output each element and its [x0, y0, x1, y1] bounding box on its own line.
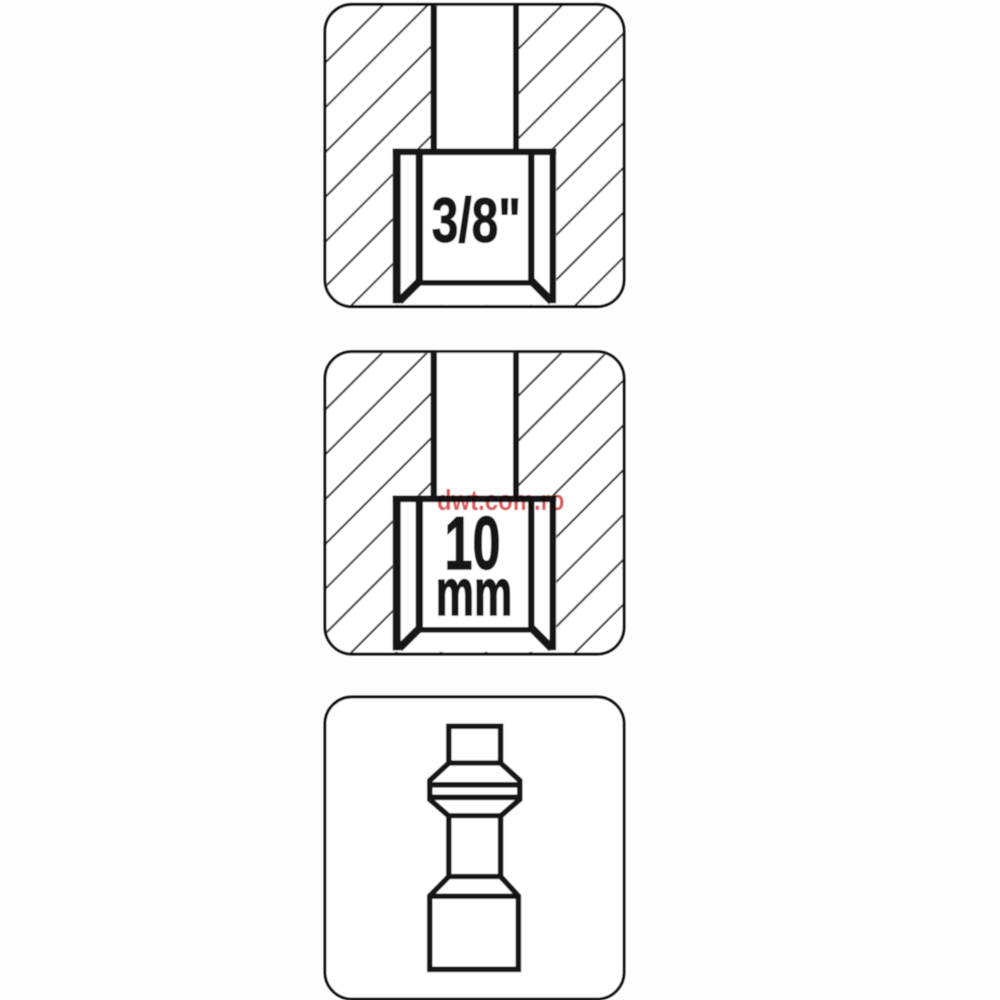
- svg-text:mm: mm: [436, 556, 513, 629]
- svg-text:dwt.com.ro: dwt.com.ro: [437, 485, 565, 517]
- svg-text:3/8": 3/8": [432, 185, 521, 256]
